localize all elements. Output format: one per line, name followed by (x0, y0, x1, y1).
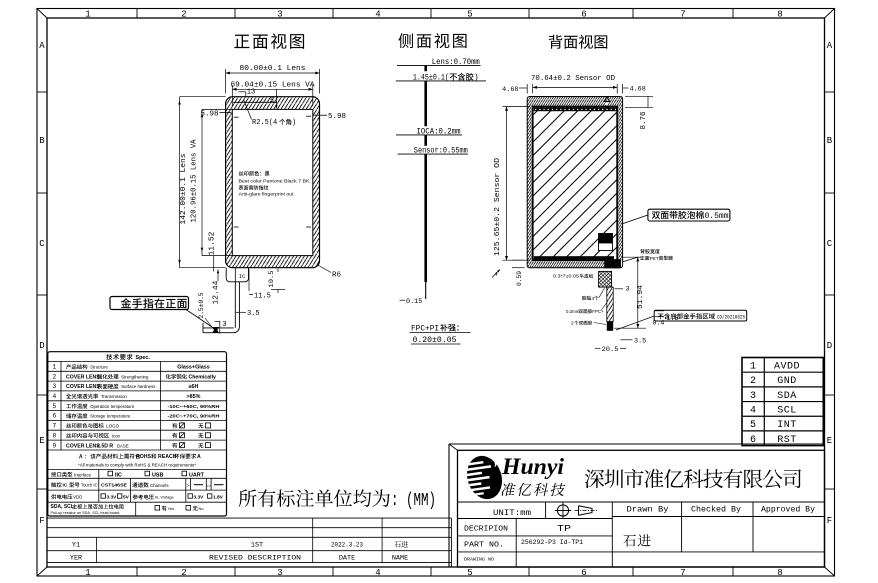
svg-text:COVER LENS: COVER LENS (66, 443, 100, 449)
svg-text:1.45±0.1(: 1.45±0.1( (413, 75, 449, 83)
svg-text:69.04±0.15 Lens VA: 69.04±0.15 Lens VA (231, 81, 315, 89)
svg-text:9: 9 (52, 442, 56, 449)
svg-text:SCL: SCL (777, 405, 797, 416)
svg-text:D: D (827, 341, 832, 351)
svg-text:: (MM): : (MM) (391, 490, 436, 511)
svg-text:4: 4 (750, 405, 756, 416)
svg-text:Spec.: Spec. (136, 355, 151, 361)
svg-text:8: 8 (777, 10, 782, 20)
svg-text:2: 2 (571, 320, 574, 325)
svg-text:C: C (39, 239, 45, 249)
svg-text:TP: TP (557, 523, 571, 534)
svg-text:5: 5 (52, 403, 56, 410)
svg-text:7: 7 (680, 10, 685, 20)
svg-text:Structure: Structure (90, 365, 108, 370)
svg-text:3: 3 (750, 391, 756, 402)
svg-text:12.44: 12.44 (212, 281, 220, 305)
svg-text:3.5: 3.5 (634, 338, 646, 346)
svg-text:COVER LENS: COVER LENS (66, 374, 100, 380)
svg-text:4: 4 (592, 296, 595, 301)
svg-text:Channels: Channels (150, 483, 169, 488)
svg-text:80.00±0.1 Lens: 80.00±0.1 Lens (240, 65, 306, 73)
svg-text:2.5±0.5: 2.5±0.5 (198, 292, 205, 318)
svg-text:NAME: NAME (392, 555, 408, 563)
svg-text:2.5D R: 2.5D R (97, 443, 113, 449)
svg-text:3: 3 (277, 10, 282, 20)
svg-text:0.15: 0.15 (406, 298, 422, 306)
svg-text:Pull-up resistor on SDA, SCL m: Pull-up resistor on SDA, SCL must board (51, 511, 120, 515)
svg-text:FPC+: FPC+ (592, 309, 604, 314)
svg-text:5.98: 5.98 (328, 113, 346, 121)
svg-text:SDA, SCL: SDA, SCL (51, 504, 74, 510)
svg-text:0.3*7±0.05: 0.3*7±0.05 (553, 274, 580, 279)
svg-text:10.5: 10.5 (268, 271, 276, 288)
svg-text:A: A (827, 41, 833, 51)
svg-text:0.20±0.05: 0.20±0.05 (413, 337, 457, 345)
svg-text:DATE: DATE (339, 555, 355, 563)
svg-text:7: 7 (680, 568, 685, 578)
svg-text:R2.5(4: R2.5(4 (252, 119, 277, 127)
svg-text:13: 13 (247, 89, 255, 97)
svg-text:DRAWING NO: DRAWING NO (464, 557, 494, 563)
svg-text:B: B (39, 136, 45, 146)
svg-text:AVDD: AVDD (774, 361, 800, 372)
svg-text:C: C (827, 239, 833, 249)
svg-text:Checked By: Checked By (691, 506, 741, 515)
svg-text:5: 5 (467, 568, 472, 578)
svg-text:4.68: 4.68 (630, 86, 646, 94)
svg-text:Anti-glare fingerprint out: Anti-glare fingerprint out (239, 192, 295, 197)
svg-text:YER: YER (70, 555, 82, 563)
svg-text:DECRIPION: DECRIPION (464, 526, 508, 534)
svg-text:-10C~+60C, 90%RH: -10C~+60C, 90%RH (168, 404, 221, 410)
svg-text:Operation temperature: Operation temperature (90, 404, 135, 409)
svg-text:Drawn By: Drawn By (627, 506, 669, 515)
svg-text:B: B (827, 136, 833, 146)
svg-text:USB: USB (152, 472, 163, 478)
svg-text:CST146SE: CST146SE (101, 483, 127, 488)
svg-text:8.76: 8.76 (640, 112, 648, 130)
svg-text:REVISED DESCRIPTION: REVISED DESCRIPTION (209, 555, 301, 563)
svg-text:1: 1 (85, 568, 90, 578)
svg-text:>85%: >85% (187, 394, 201, 400)
svg-text:Glass+Glass: Glass+Glass (177, 365, 210, 371)
svg-text:IIL Voltage: IIL Voltage (155, 495, 175, 500)
svg-text:51.94: 51.94 (637, 285, 645, 309)
svg-text:1: 1 (750, 361, 756, 372)
svg-text:3.3V: 3.3V (107, 495, 118, 501)
svg-text:BASE: BASE (117, 443, 129, 448)
svg-text:E: E (827, 436, 832, 446)
svg-text:256292-P3 Id-TP1: 256292-P3 Id-TP1 (521, 539, 583, 546)
svg-text:UART: UART (189, 472, 205, 478)
svg-text:1.8V: 1.8V (213, 495, 224, 501)
svg-text:5V: 5V (123, 495, 130, 501)
svg-text:6: 6 (750, 435, 756, 446)
svg-text:11.5: 11.5 (254, 292, 271, 300)
svg-text:IIC: IIC (115, 472, 122, 478)
svg-text:A: A (197, 454, 201, 460)
svg-text:Interface: Interface (74, 472, 92, 477)
svg-text:≥6H: ≥6H (189, 384, 199, 390)
svg-text:0.5mm: 0.5mm (705, 213, 729, 221)
svg-text:PET: PET (650, 256, 659, 261)
svg-text:FPC+PI: FPC+PI (411, 325, 439, 333)
svg-text:PART NO.: PART NO. (464, 542, 504, 550)
svg-text:R6: R6 (332, 272, 342, 280)
svg-text:A: A (39, 41, 45, 51)
svg-text:8: 8 (52, 432, 56, 439)
svg-text:7: 7 (52, 423, 56, 430)
svg-text:2: 2 (52, 373, 56, 380)
svg-text:3.5: 3.5 (247, 310, 260, 318)
svg-text:No: No (199, 506, 205, 511)
svg-text:142.00±0.1 Lens: 142.00±0.1 Lens (180, 154, 188, 225)
svg-text:120.96±0.15 Lens VA: 120.96±0.15 Lens VA (190, 139, 198, 222)
svg-text:2: 2 (181, 568, 186, 578)
svg-text:REACH: REACH (158, 454, 177, 460)
svg-text:Strengthening: Strengthening (121, 374, 149, 379)
svg-text:Hunyi: Hunyi (501, 454, 565, 479)
svg-text:CO/20210825: CO/20210825 (717, 314, 745, 321)
svg-text:Y1: Y1 (72, 542, 80, 550)
svg-text:*All materials to comply with: *All materials to comply with RoHS & REA… (78, 463, 196, 468)
svg-text:>: > (187, 483, 190, 488)
svg-text:4: 4 (375, 10, 380, 20)
svg-text:8: 8 (777, 568, 782, 578)
svg-text:Transmission: Transmission (101, 394, 128, 399)
svg-text:2: 2 (181, 10, 186, 20)
svg-text:-20C~+70C, 90%RH: -20C~+70C, 90%RH (168, 414, 221, 420)
svg-text:F: F (39, 516, 44, 526)
svg-text:Chemically: Chemically (189, 374, 217, 380)
svg-text:3: 3 (626, 285, 630, 293)
svg-text:INT: INT (777, 420, 797, 431)
svg-text:Yes: Yes (168, 506, 175, 511)
svg-text:Icon: Icon (112, 433, 121, 438)
svg-text:4: 4 (375, 568, 380, 578)
svg-text:1: 1 (85, 10, 90, 20)
svg-text:GND: GND (777, 376, 797, 387)
svg-text:Approved By: Approved By (761, 506, 815, 515)
svg-text:LOGO: LOGO (106, 424, 119, 429)
svg-text:3: 3 (52, 383, 56, 390)
svg-text:): ) (474, 75, 479, 83)
svg-text:5.98: 5.98 (200, 111, 218, 119)
svg-text:ROHS: ROHS (136, 454, 152, 460)
svg-text:VDD: VDD (73, 495, 82, 500)
svg-text:IC: IC (239, 273, 246, 280)
svg-text:0.3mm: 0.3mm (566, 309, 580, 314)
svg-text:4.68: 4.68 (502, 86, 518, 94)
svg-text:3: 3 (222, 321, 226, 329)
svg-text:70.64±0.2 Sensor OD: 70.64±0.2 Sensor OD (531, 75, 615, 83)
svg-text:RST: RST (777, 435, 797, 446)
svg-text:20.5: 20.5 (602, 346, 619, 354)
svg-text:Storage temperature: Storage temperature (90, 414, 131, 419)
svg-text:IOCA:0.2mm: IOCA:0.2mm (417, 129, 461, 137)
svg-text:0.59: 0.59 (516, 271, 523, 286)
svg-text:E: E (39, 436, 44, 446)
svg-text:6: 6 (52, 413, 56, 420)
svg-text:Touch IC: Touch IC (81, 483, 98, 488)
svg-text:2: 2 (750, 376, 756, 387)
svg-text:Best color Pantone Black 7 BK: Best color Pantone Black 7 BK (239, 179, 311, 184)
svg-text:4: 4 (52, 393, 56, 400)
svg-text:1ST: 1ST (251, 542, 263, 550)
svg-text:1: 1 (52, 364, 56, 371)
svg-text:SDA: SDA (777, 391, 797, 402)
svg-text:3: 3 (277, 568, 282, 578)
svg-text:): ) (292, 119, 296, 127)
svg-text:2022.3.23: 2022.3.23 (331, 542, 363, 550)
svg-text:10: 10 (268, 97, 275, 104)
svg-text:IC: IC (63, 483, 68, 489)
svg-text:COVER LENS: COVER LENS (66, 384, 100, 390)
svg-text:6: 6 (581, 10, 586, 20)
svg-text:3.3V: 3.3V (194, 495, 205, 501)
svg-text:D: D (39, 341, 44, 351)
svg-text:>>: >> (206, 483, 211, 488)
svg-text:Surface hardness: Surface hardness (121, 384, 156, 389)
svg-text:5: 5 (750, 420, 756, 431)
svg-text:UNIT:mm: UNIT:mm (493, 508, 531, 518)
svg-text:125.65±0.2 Sensor OD: 125.65±0.2 Sensor OD (494, 158, 502, 256)
svg-text:5: 5 (467, 10, 472, 20)
svg-text:11.52: 11.52 (209, 232, 217, 256)
svg-text:F: F (827, 516, 832, 526)
svg-text:6: 6 (581, 568, 586, 578)
